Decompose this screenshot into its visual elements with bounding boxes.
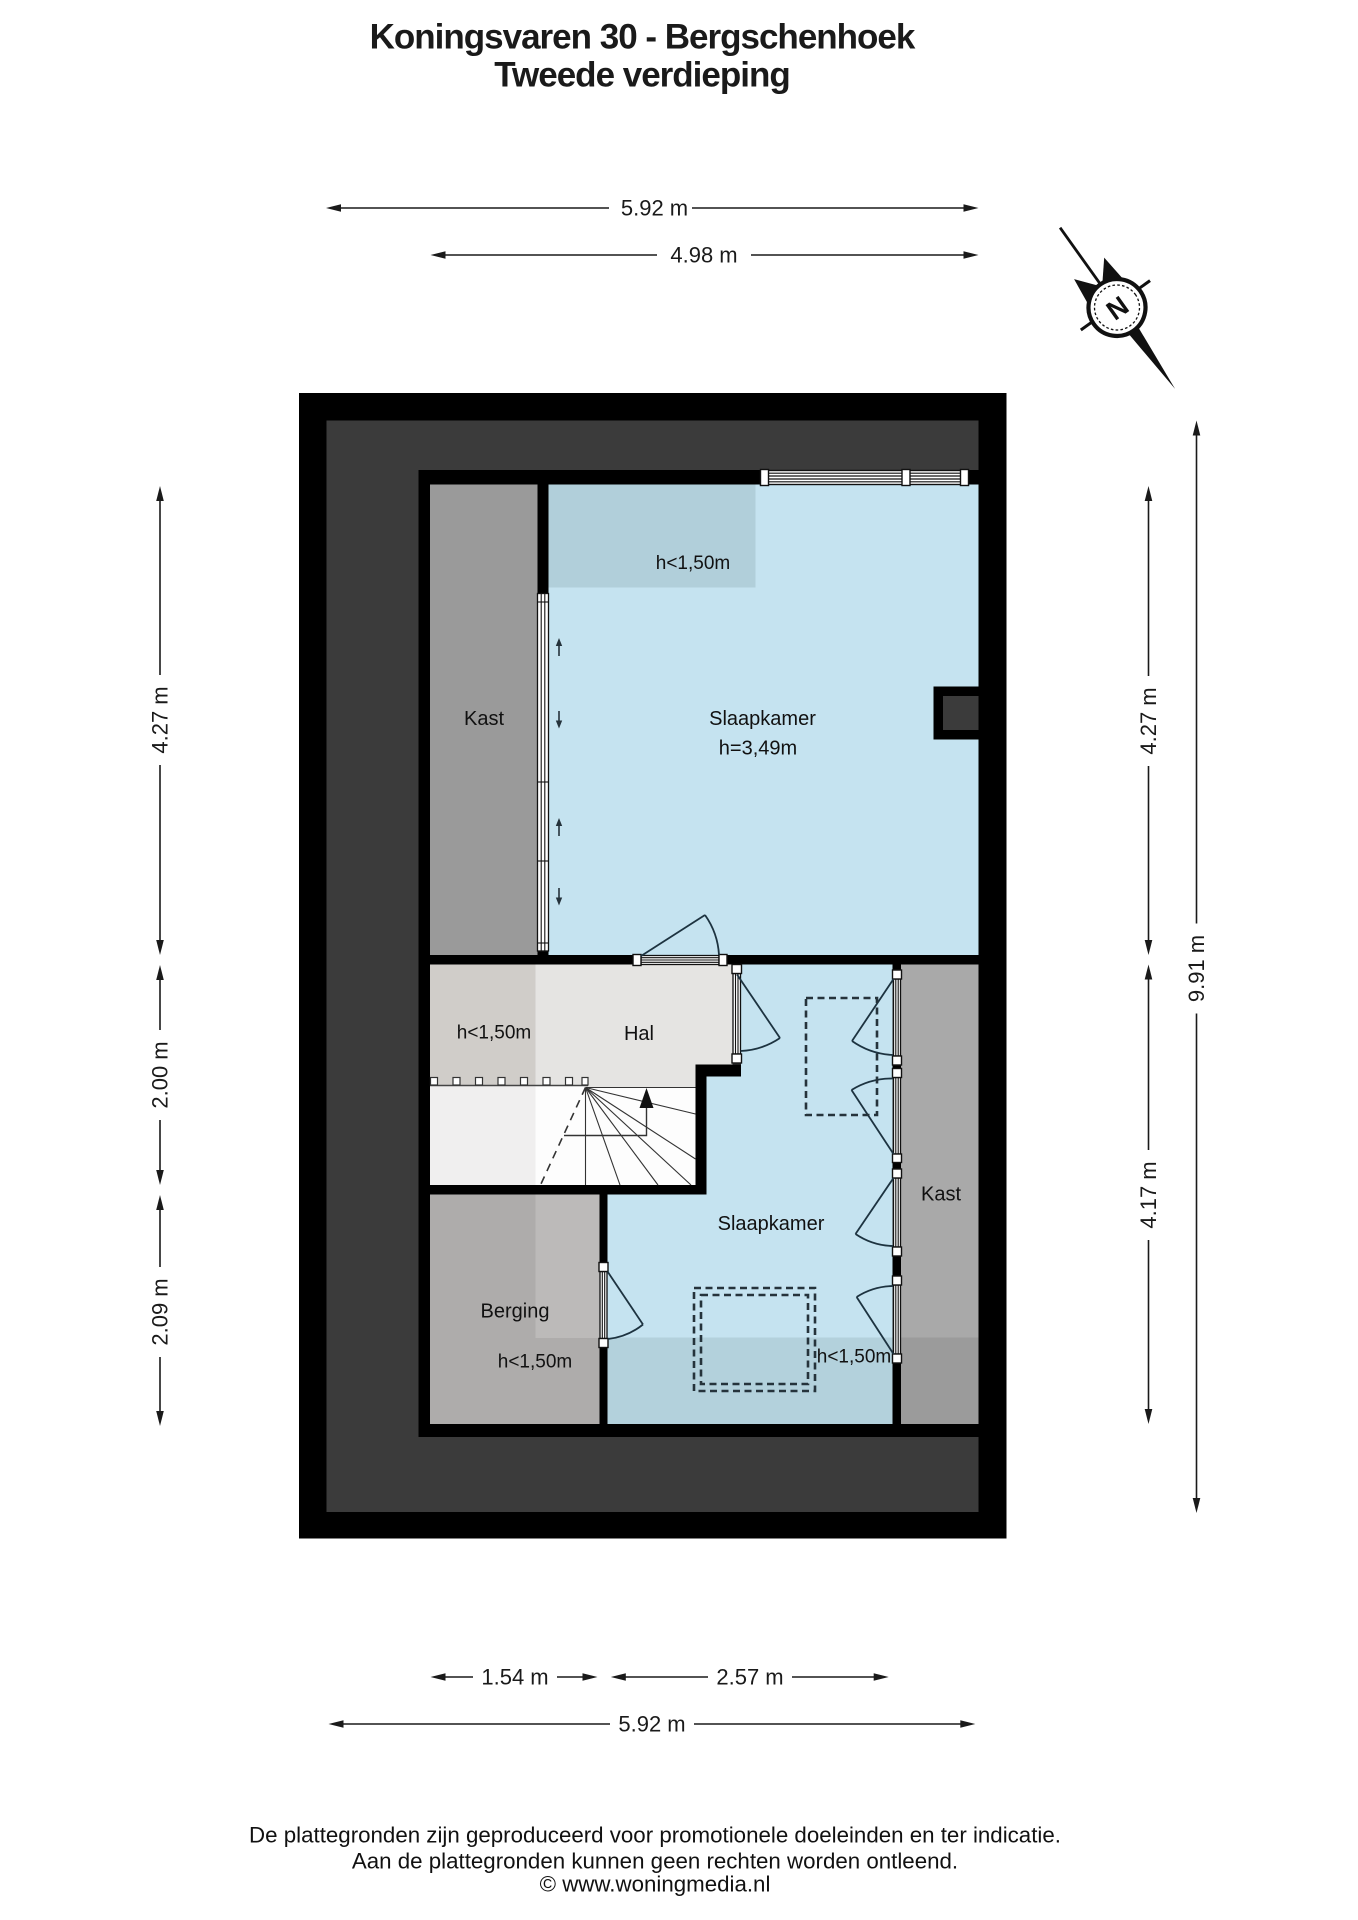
svg-text:Kast: Kast — [921, 1184, 961, 1206]
svg-text:h<1,50m: h<1,50m — [656, 553, 730, 574]
svg-text:h=3,49m: h=3,49m — [719, 738, 797, 760]
svg-text:Slaapkamer: Slaapkamer — [709, 708, 816, 730]
svg-text:4.27 m: 4.27 m — [148, 686, 173, 753]
svg-text:2.57 m: 2.57 m — [716, 1665, 783, 1690]
svg-text:9.91 m: 9.91 m — [1184, 935, 1209, 1002]
svg-text:1.54 m: 1.54 m — [481, 1665, 548, 1690]
svg-text:Berging: Berging — [481, 1301, 550, 1323]
svg-text:Tweede verdieping: Tweede verdieping — [494, 56, 790, 95]
svg-text:De plattegronden zijn geproduc: De plattegronden zijn geproduceerd voor … — [249, 1823, 1061, 1848]
svg-text:4.17 m: 4.17 m — [1136, 1161, 1161, 1228]
svg-text:Aan de plattegronden kunnen ge: Aan de plattegronden kunnen geen rechten… — [352, 1849, 958, 1874]
svg-text:2.00 m: 2.00 m — [148, 1041, 173, 1108]
svg-text:© www.woningmedia.nl: © www.woningmedia.nl — [540, 1872, 771, 1897]
svg-text:Slaapkamer: Slaapkamer — [718, 1213, 825, 1235]
svg-text:5.92 m: 5.92 m — [621, 196, 688, 221]
svg-text:Koningsvaren 30 - Bergschenhoe: Koningsvaren 30 - Bergschenhoek — [370, 18, 916, 57]
svg-text:5.92 m: 5.92 m — [618, 1712, 685, 1737]
svg-text:Hal: Hal — [624, 1023, 654, 1045]
svg-text:h<1,50m: h<1,50m — [817, 1347, 891, 1368]
svg-text:h<1,50m: h<1,50m — [498, 1352, 572, 1373]
svg-text:2.09 m: 2.09 m — [148, 1278, 173, 1345]
svg-text:4.98 m: 4.98 m — [670, 243, 737, 268]
svg-text:h<1,50m: h<1,50m — [457, 1023, 531, 1044]
svg-text:Kast: Kast — [464, 708, 504, 730]
svg-text:4.27 m: 4.27 m — [1136, 687, 1161, 754]
